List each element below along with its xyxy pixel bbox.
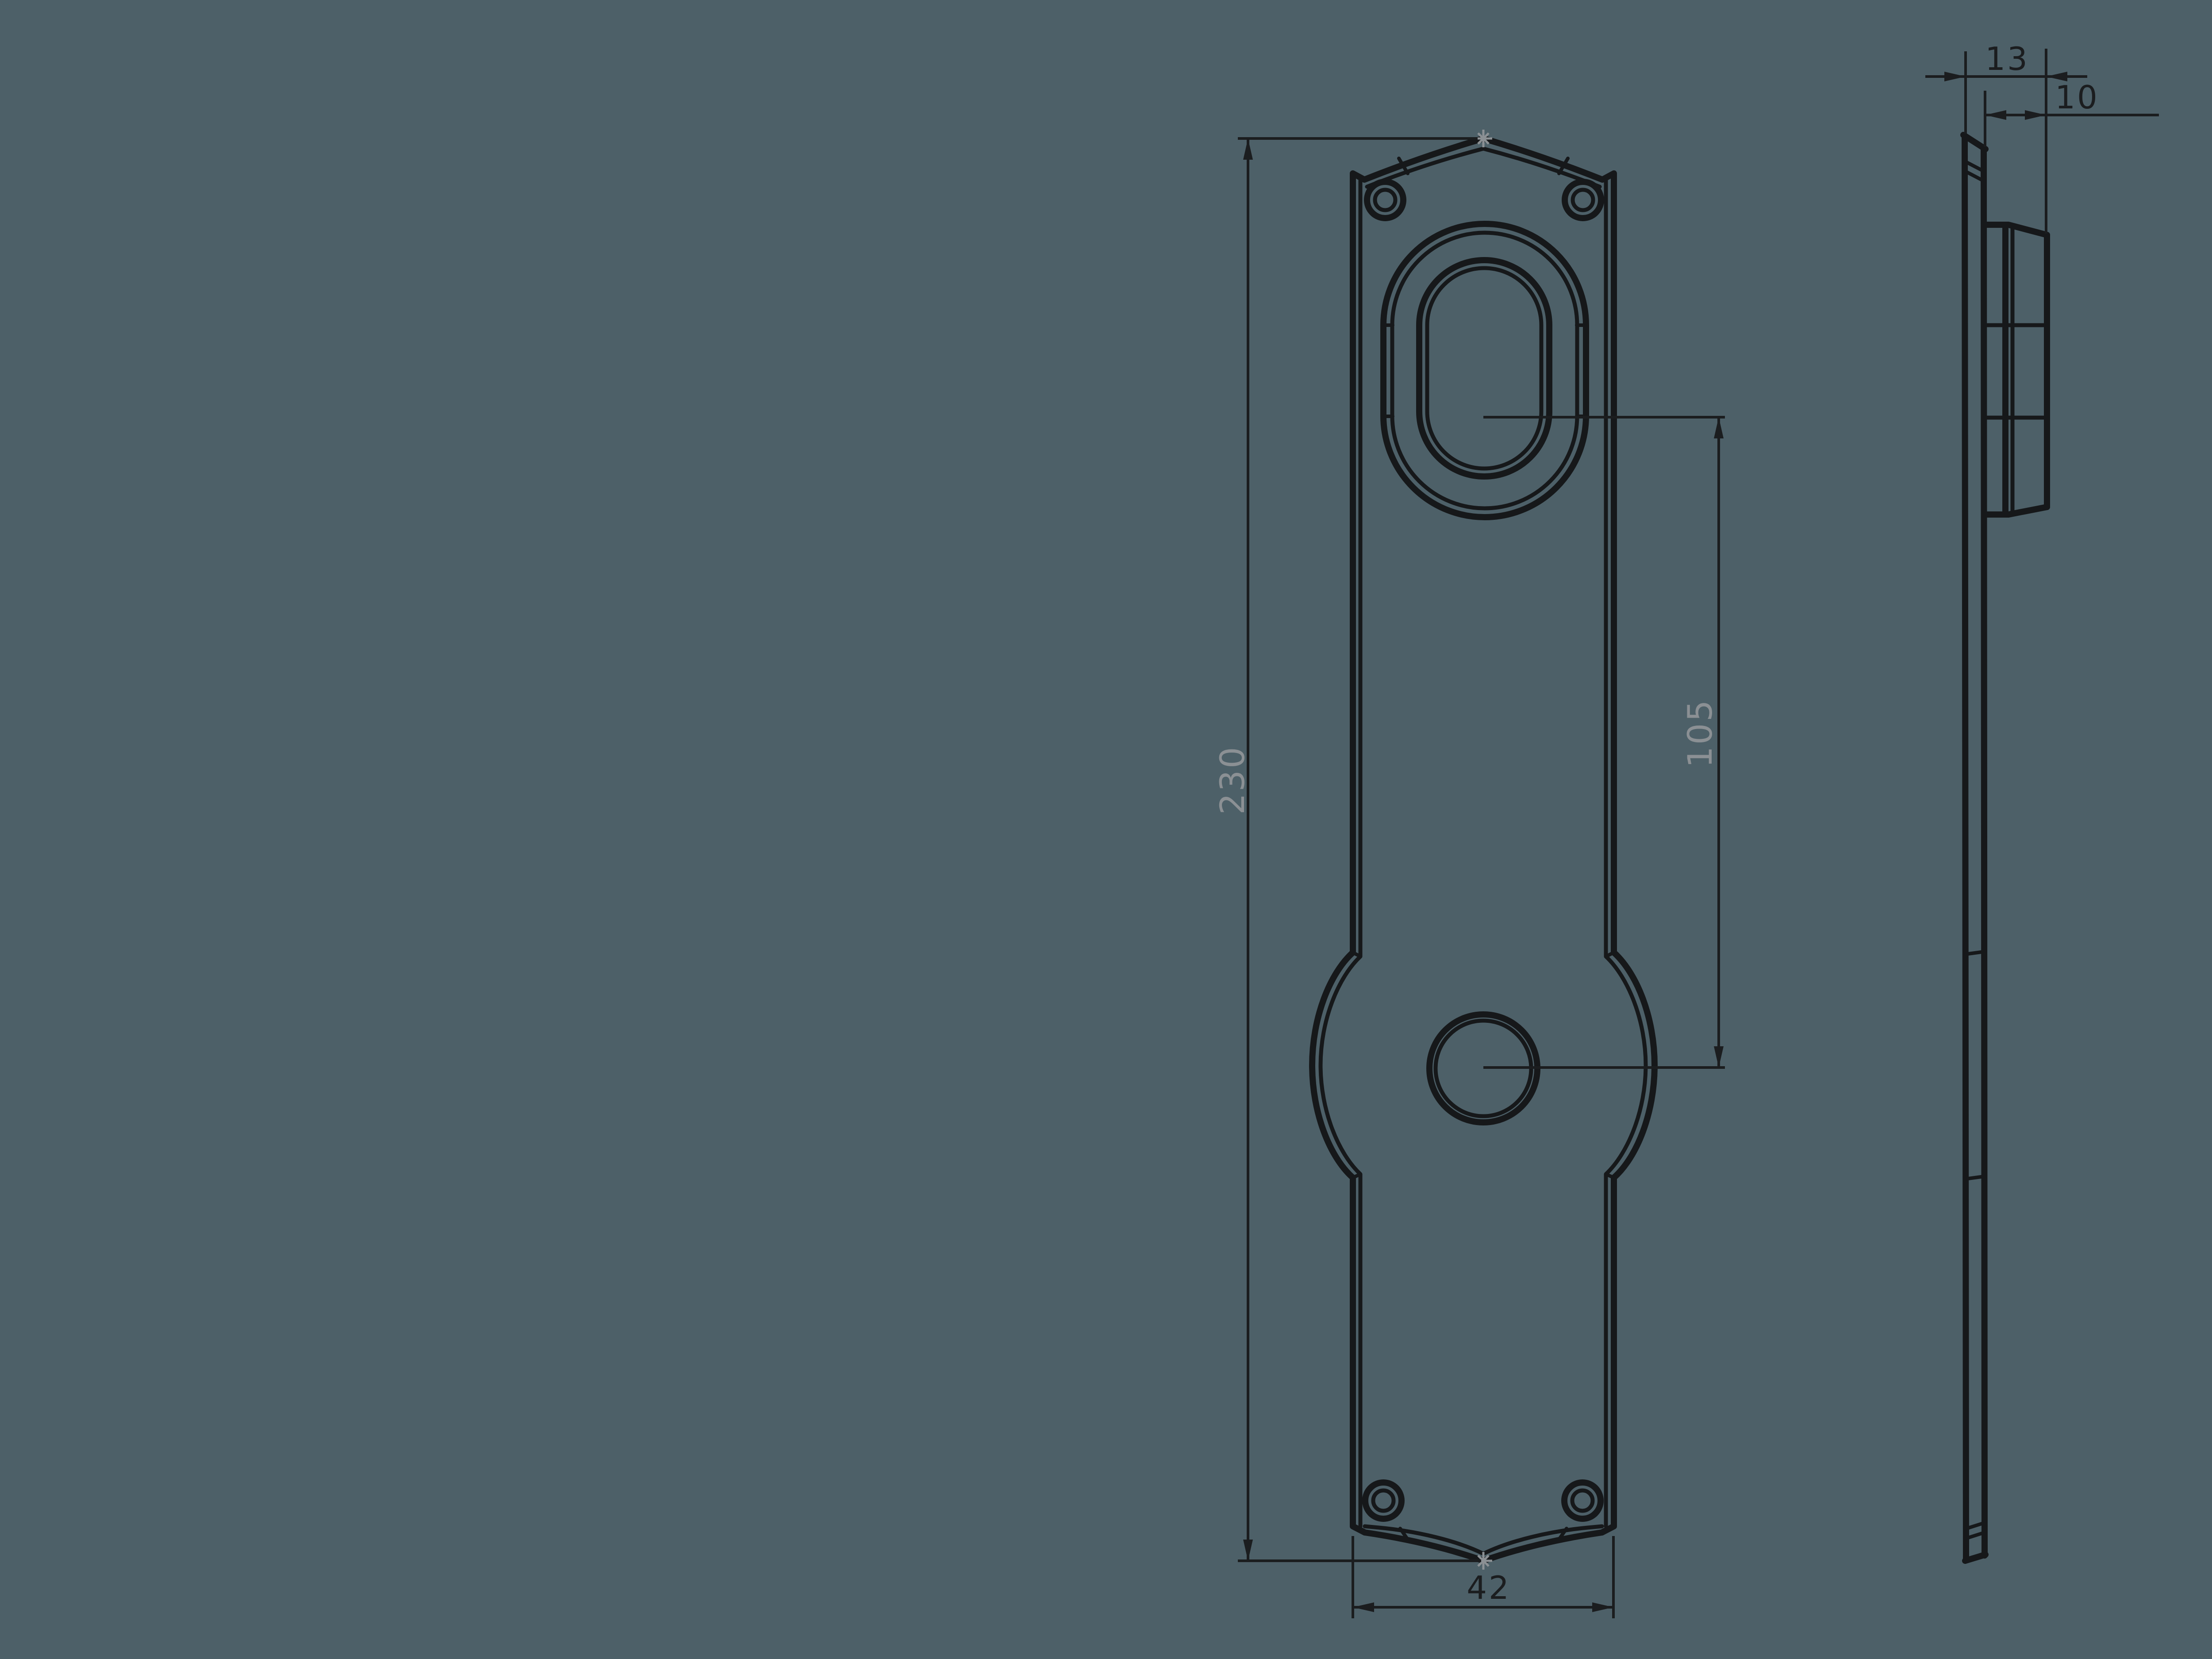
dim-overall-height: 230 <box>1213 138 1481 1561</box>
side-plate-back-edge <box>1965 136 1966 1560</box>
screw-hole-outer <box>1564 1482 1601 1519</box>
screw-hole-inner <box>1573 190 1593 210</box>
boss-top-edge <box>1985 225 2047 235</box>
dim-overall-width: 42 <box>1353 1536 1613 1618</box>
screw-hole-outer <box>1565 182 1601 218</box>
dim-boss-depth: 10 <box>1985 79 2159 147</box>
side-boss-profile <box>1985 225 2047 515</box>
screw-hole-inner <box>1572 1490 1593 1511</box>
dim-105-label: 105 <box>1680 698 1720 768</box>
side-plate-front-edge <box>1984 149 1985 1555</box>
drawing-canvas: 230 105 42 13 <box>0 0 2212 1659</box>
dim-230-label: 230 <box>1213 745 1252 814</box>
screw-hole-inner <box>1375 190 1395 210</box>
keyhole-opening-inner <box>1427 268 1541 469</box>
screw-hole-bottom-left <box>1365 1482 1402 1519</box>
arrow-outward-right <box>2025 110 2046 120</box>
dim-10-label: 10 <box>2055 79 2099 116</box>
screw-hole-outer <box>1367 182 1403 218</box>
screw-hole-outer <box>1365 1482 1402 1519</box>
arrow-up <box>1714 417 1724 438</box>
screw-hole-bottom-right <box>1564 1482 1601 1519</box>
boss-bottom-edge <box>1985 507 2047 515</box>
arrow-left <box>1353 1602 1374 1612</box>
keyhole-boss <box>1383 224 1586 517</box>
front-view <box>1312 130 1655 1570</box>
screw-hole-top-left <box>1367 182 1403 218</box>
arrow-outward-left <box>1985 110 2006 120</box>
arrow-right <box>1592 1602 1613 1612</box>
arrow-inward-left <box>1944 72 1966 81</box>
front-plate-outline <box>1312 138 1655 1561</box>
arrow-down <box>1243 1540 1253 1561</box>
side-view <box>1963 135 2047 1561</box>
dim-42-label: 42 <box>1467 1569 1511 1606</box>
dim-total-thickness: 13 <box>1925 40 2087 234</box>
screw-hole-inner <box>1373 1490 1394 1511</box>
screw-hole-top-right <box>1565 182 1601 218</box>
arrow-up <box>1243 138 1253 160</box>
arrow-down <box>1714 1046 1724 1068</box>
dim-13-label: 13 <box>1985 40 2029 77</box>
